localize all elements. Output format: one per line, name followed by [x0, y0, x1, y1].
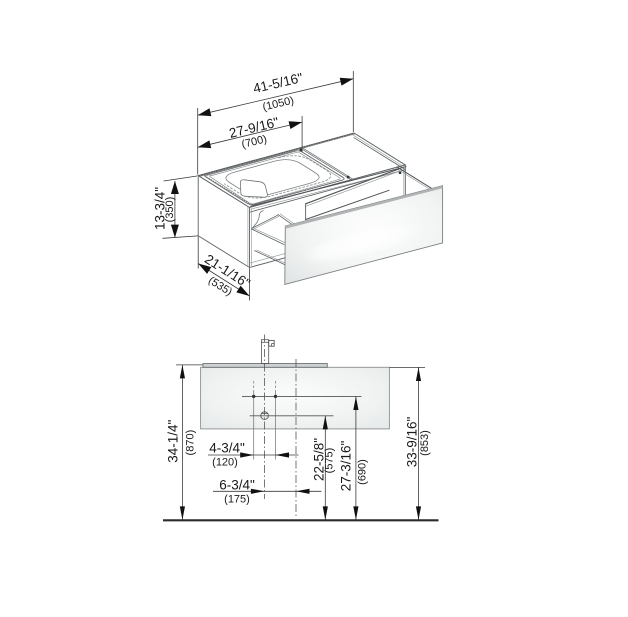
svg-text:33-9/16": 33-9/16" [404, 417, 419, 468]
svg-text:(575): (575) [324, 448, 336, 474]
svg-text:(690): (690) [357, 459, 369, 485]
svg-text:(175): (175) [224, 494, 250, 506]
svg-text:34-1/4": 34-1/4" [166, 419, 181, 462]
svg-text:(350): (350) [164, 197, 176, 223]
svg-text:(853): (853) [419, 430, 431, 456]
svg-text:(120): (120) [212, 457, 238, 469]
svg-text:4-3/4": 4-3/4" [209, 441, 245, 456]
svg-text:(870): (870) [184, 430, 196, 456]
svg-text:27-3/16": 27-3/16" [339, 441, 354, 492]
svg-text:6-3/4": 6-3/4" [219, 478, 255, 493]
